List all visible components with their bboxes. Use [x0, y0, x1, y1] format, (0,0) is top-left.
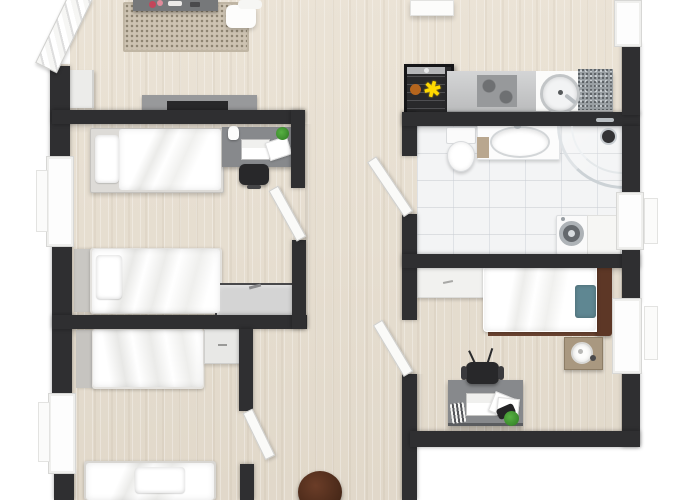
wall-bathroom-bedroom	[402, 254, 640, 268]
dresser	[417, 267, 485, 298]
wall-right-top	[622, 43, 640, 115]
cabinet-knob	[424, 68, 429, 73]
wall-left-bottom	[54, 470, 74, 500]
desk-plant	[504, 411, 519, 426]
small-cabinet	[204, 329, 243, 364]
wall-bedroomBL-right-lower	[240, 464, 254, 500]
flower-decor-red	[149, 1, 156, 8]
sink-drain	[558, 90, 563, 95]
bed4-pillow	[135, 467, 185, 493]
desk-figurine	[228, 126, 239, 140]
wall-shadow	[305, 124, 312, 329]
table-dish	[168, 1, 182, 6]
bed3-headboard	[76, 330, 93, 388]
window-bedroomR-pane	[644, 306, 658, 360]
wall-bedroomL-right-upper	[291, 110, 305, 188]
window-bathroom-pane	[644, 198, 658, 244]
vanity-basin	[490, 126, 550, 158]
table-item-dark	[190, 2, 200, 7]
round-mirror	[600, 128, 617, 145]
vanity-wood-side	[477, 137, 489, 158]
chair-base	[247, 185, 261, 189]
chair-armrest	[461, 366, 467, 380]
wall-bedroomR-bottom	[410, 431, 640, 447]
washer-door-center	[568, 230, 575, 237]
ceiling-unit	[410, 0, 454, 16]
granite-worktop	[578, 69, 613, 110]
wall-bedroomL-right-lower	[292, 240, 306, 329]
window-left-lower-pane	[38, 402, 50, 462]
entry-cabinet	[68, 70, 94, 108]
bed2-pillow	[96, 255, 122, 299]
window-top-right	[614, 0, 642, 47]
floor-plan-render: ✱	[0, 0, 700, 500]
wall-horizontal-top	[52, 110, 305, 124]
flower-decor-pink	[157, 0, 163, 6]
bed3-duvet	[93, 330, 203, 387]
window-bedroomR	[612, 298, 642, 374]
bed5-pillow-teal	[575, 285, 596, 318]
shower-fixture	[596, 118, 614, 122]
cooktop	[477, 75, 517, 107]
wall-shadow	[417, 374, 424, 431]
wall-right-mid	[622, 246, 640, 303]
wall-right-bathroom	[622, 126, 640, 196]
pen-cup	[450, 402, 467, 424]
office-chair	[466, 362, 499, 384]
bed2-headboard	[74, 249, 91, 312]
cabinet-handle	[218, 344, 227, 346]
tv-screen	[167, 101, 228, 110]
wall-bedroomBL-right-upper	[239, 329, 253, 411]
nightstand-item	[590, 355, 596, 361]
washer-control	[561, 217, 565, 221]
window-left-upper-pane	[36, 170, 48, 232]
lamp-finial	[578, 349, 583, 354]
outside-bottom-right	[417, 447, 700, 500]
sofa-back-cushion	[238, 0, 262, 9]
window-left-lower	[48, 393, 76, 474]
bed1-duvet	[119, 129, 221, 190]
chair-armrest	[498, 366, 504, 380]
window-left-upper	[46, 156, 74, 247]
outside-right	[640, 0, 700, 500]
bed1-pillow	[95, 135, 119, 183]
office-chair	[239, 164, 269, 185]
desk-plant	[276, 127, 289, 140]
wall-horizontal-mid	[52, 315, 307, 329]
window-bathroom	[616, 192, 644, 250]
bed5-headboard	[596, 262, 612, 336]
